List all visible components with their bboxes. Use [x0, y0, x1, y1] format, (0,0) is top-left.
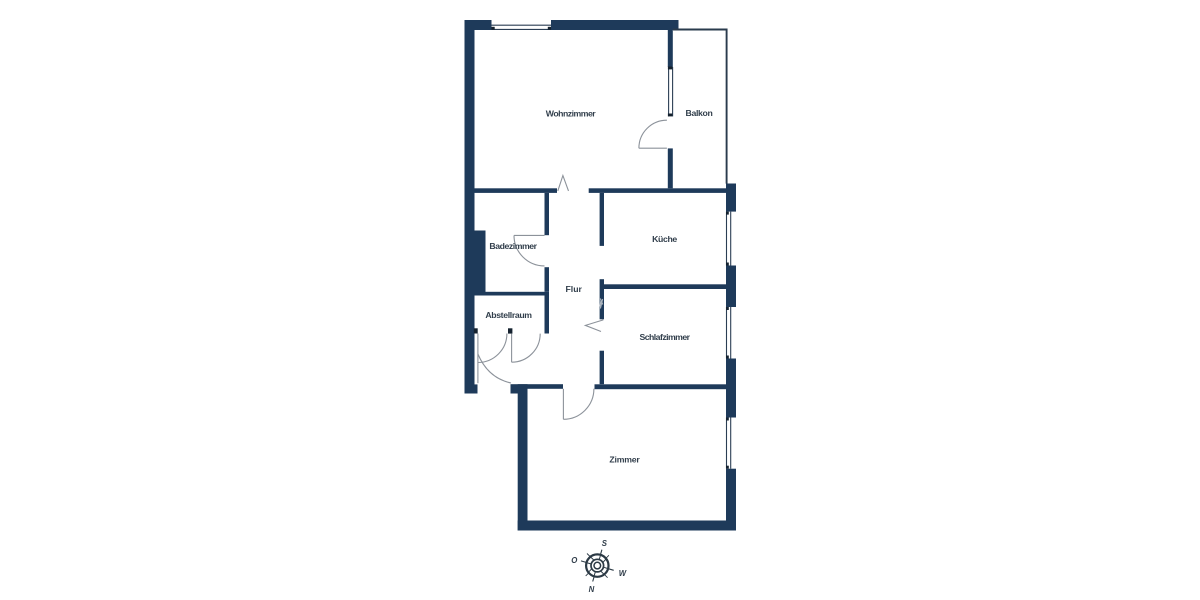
- svg-text:Abstellraum: Abstellraum: [485, 310, 532, 320]
- svg-text:O: O: [571, 556, 577, 565]
- svg-text:S: S: [602, 539, 608, 548]
- svg-text:Küche: Küche: [652, 234, 677, 244]
- svg-text:Badezimmer: Badezimmer: [489, 241, 537, 251]
- svg-text:Wohnzimmer: Wohnzimmer: [546, 108, 597, 118]
- svg-text:N: N: [589, 585, 595, 594]
- svg-text:W: W: [619, 569, 627, 578]
- svg-text:Schlafzimmer: Schlafzimmer: [639, 332, 690, 342]
- svg-text:Balkon: Balkon: [686, 108, 713, 118]
- svg-text:Flur: Flur: [565, 284, 582, 294]
- svg-text:Zimmer: Zimmer: [609, 455, 640, 465]
